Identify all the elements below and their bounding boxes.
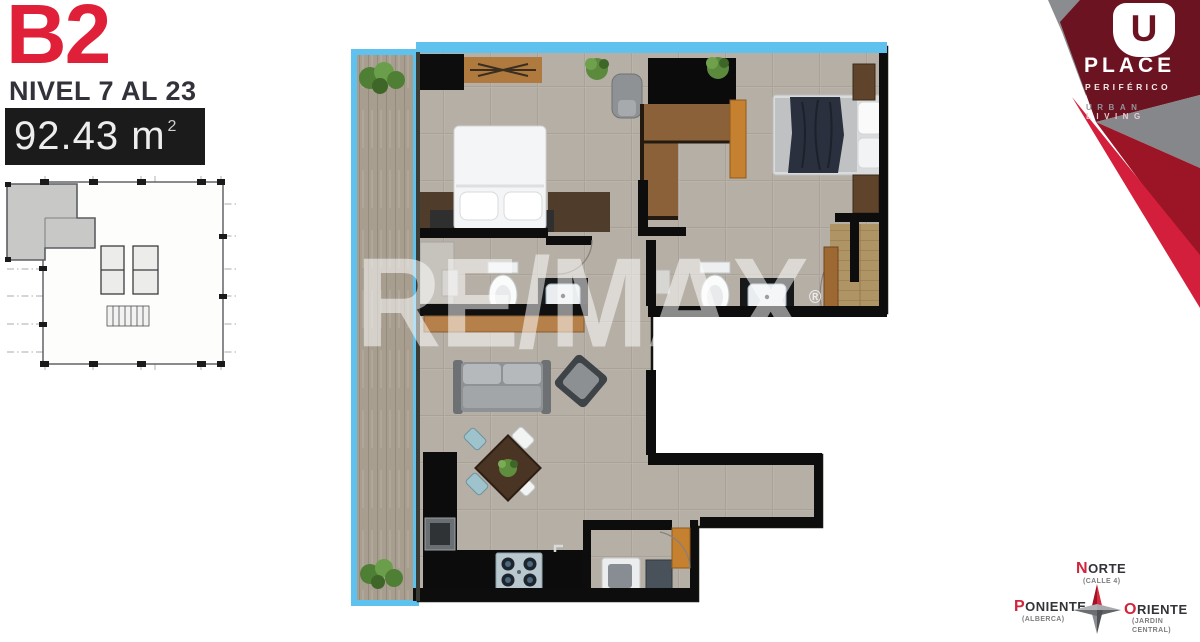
vanity-wood — [424, 316, 584, 332]
tv-console — [420, 54, 464, 90]
towel — [442, 270, 458, 296]
apartment-floorplan — [350, 40, 910, 642]
bench — [548, 192, 610, 232]
toilet-tank — [700, 262, 730, 273]
floorplan-flyer: B2 NIVEL 7 AL 23 92.43 m 2 — [0, 0, 1200, 642]
towel — [656, 270, 670, 294]
keyplan-stairs — [107, 306, 149, 326]
unit-area-exponent: 2 — [168, 118, 177, 136]
brand-subname: PERIFÉRICO — [1085, 82, 1171, 92]
compass-rose-icon — [1000, 552, 1200, 642]
brand-tagline: URBAN LIVING — [1086, 103, 1200, 121]
sofa-cushion — [503, 364, 541, 384]
terrace-edge-band — [416, 42, 887, 53]
pillow — [858, 102, 882, 134]
pillow — [504, 192, 542, 220]
brand-name: PLACE — [1084, 54, 1175, 78]
nightstand — [853, 64, 875, 100]
toilet-tank — [488, 262, 518, 273]
u-place-logo: U — [1113, 3, 1175, 57]
unit-level: NIVEL 7 AL 23 — [9, 76, 197, 107]
window-wall — [416, 52, 420, 601]
building-key-plan — [5, 174, 245, 392]
terrace-deck — [354, 52, 416, 603]
sofa-cushion — [463, 364, 501, 384]
vanity-counter — [420, 304, 588, 316]
sofa-seat — [463, 386, 541, 408]
closet-door — [730, 100, 746, 178]
pillow — [858, 138, 882, 168]
terrace — [354, 52, 416, 603]
door — [672, 528, 690, 568]
logo-letter: U — [1131, 8, 1158, 50]
unit-code: B2 — [6, 0, 109, 83]
brand-corner: U PLACE PERIFÉRICO URBAN LIVING — [1000, 0, 1200, 320]
pillow — [460, 192, 498, 220]
unit-area-badge: 92.43 m 2 — [5, 108, 205, 165]
unit-area-value: 92.43 m — [14, 114, 166, 159]
corner-ribbon — [1000, 0, 1200, 320]
compass: NORTE (CALLE 4) PONIENTE (ALBERCA) ORIEN… — [1000, 552, 1200, 642]
nightstand — [853, 175, 879, 213]
